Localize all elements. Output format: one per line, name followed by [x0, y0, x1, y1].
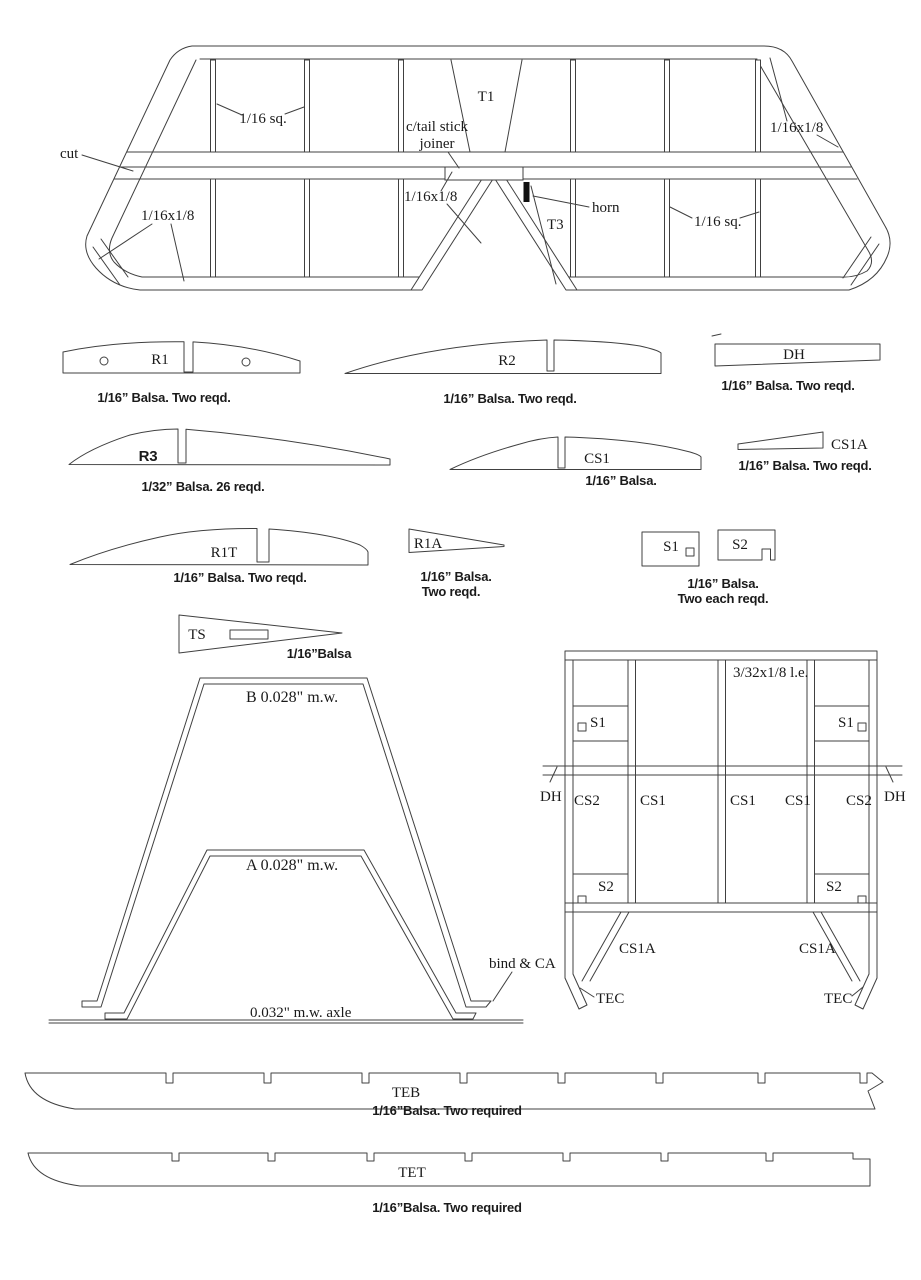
s2-label: S2 — [732, 537, 748, 553]
cs1-label: CS1 — [584, 451, 610, 467]
cut-label: cut — [60, 146, 79, 162]
ts-caption: 1/16”Balsa — [287, 646, 352, 661]
rib — [571, 179, 576, 277]
t3-rib-line — [531, 186, 556, 284]
tet-outline — [28, 1153, 870, 1186]
leader-tec-left — [580, 988, 594, 997]
rib — [211, 179, 216, 277]
cs1a-outline — [738, 432, 823, 450]
dh-label: DH — [783, 347, 805, 363]
cs1-label-c: CS1 — [785, 793, 811, 809]
cs1-outline — [450, 437, 701, 470]
control-horn — [524, 182, 530, 202]
r1-outline — [63, 342, 300, 373]
size-label-bottom-left: 1/16x1/8 — [141, 208, 194, 224]
ts-label: TS — [188, 627, 206, 643]
cs1-caption: 1/16” Balsa. — [585, 473, 656, 488]
cs-s2-right-label: S2 — [826, 879, 842, 895]
cs2-right-label: CS2 — [846, 793, 872, 809]
cs1-label-b: CS1 — [730, 793, 756, 809]
corner-gusset-right — [843, 237, 879, 285]
part-dh: DH 1/16” Balsa. Two reqd. — [712, 334, 880, 393]
part-teb: TEB 1/16”Balsa. Two required — [25, 1073, 883, 1118]
cs-right-tip — [855, 974, 877, 1009]
cs1a-right-label: CS1A — [799, 941, 836, 957]
r3-outline — [69, 429, 390, 465]
part-s1-s2: S1 S2 1/16” Balsa. Two each reqd. — [642, 530, 775, 606]
rib — [665, 60, 670, 152]
cs-column — [628, 660, 636, 903]
gear-a-wire — [105, 850, 476, 1019]
rib — [305, 60, 310, 152]
gear-b-label: B 0.028" m.w. — [246, 689, 338, 706]
dh-tick — [712, 334, 721, 336]
joiner-label-line1: c/tail stick — [406, 119, 469, 135]
tail-stick-joiner — [445, 167, 523, 180]
rib — [399, 60, 404, 152]
cs-s2-left-label: S2 — [598, 879, 614, 895]
cs-right-edge — [869, 660, 877, 978]
part-r1t: R1T 1/16” Balsa. Two reqd. — [70, 528, 368, 585]
axle-label: 0.032" m.w. axle — [250, 1005, 352, 1021]
cs2-left-label: CS2 — [574, 793, 600, 809]
tet-label: TET — [398, 1165, 426, 1181]
cs-dh-left-label: DH — [540, 789, 562, 805]
r1t-label: R1T — [211, 545, 238, 561]
gear-a-label: A 0.028" m.w. — [246, 857, 338, 874]
leader-bind — [493, 972, 512, 1001]
s1-hole — [686, 548, 694, 556]
t1-label: T1 — [478, 89, 495, 105]
s1s2-caption-line2: Two each reqd. — [678, 591, 769, 606]
r3-label: R3 — [139, 448, 158, 465]
s1-square-right — [858, 723, 866, 731]
leader-joiner — [448, 152, 459, 168]
r1a-caption-line1: 1/16” Balsa. — [420, 569, 491, 584]
rib — [305, 179, 310, 277]
horn-label: horn — [592, 200, 620, 216]
le-size-label: 3/32x1/8 l.e. — [733, 665, 808, 681]
s1-square-left — [578, 723, 586, 731]
joiner-label-line2: joiner — [419, 136, 455, 152]
rib — [571, 60, 576, 152]
s1-label: S1 — [663, 539, 679, 555]
size-label-top-left: 1/16 sq. — [239, 111, 287, 127]
size-label-bottom-right: 1/16 sq. — [694, 214, 742, 230]
part-cs1a: CS1A 1/16” Balsa. Two reqd. — [738, 432, 872, 473]
leader-cut — [82, 155, 133, 171]
r1-label: R1 — [151, 352, 169, 368]
left-le-inner — [109, 60, 419, 277]
cs-column — [718, 660, 726, 903]
cs-column — [807, 660, 815, 903]
center-section-diagram: 3/32x1/8 l.e. S1 S1 DH DH CS2 CS1 CS1 CS… — [540, 651, 906, 1009]
right-le-inner — [569, 60, 872, 277]
plan-drawing: cut 1/16 sq. T1 c/tail stick joiner 1/16… — [0, 0, 921, 1280]
cs-left-tip — [565, 974, 587, 1009]
r1-hole — [100, 357, 108, 365]
balsa-plan-sheet: cut 1/16 sq. T1 c/tail stick joiner 1/16… — [0, 0, 921, 1280]
cs-top-spar — [565, 651, 877, 660]
cs-s1-left-label: S1 — [590, 715, 606, 731]
cs1a-left-label: CS1A — [619, 941, 656, 957]
rib — [211, 60, 216, 152]
r1t-caption: 1/16” Balsa. Two reqd. — [173, 570, 306, 585]
elevator-cut-strip-right — [506, 179, 577, 290]
tet-caption: 1/16”Balsa. Two required — [372, 1200, 522, 1215]
leader-size-bottomleft — [99, 224, 184, 281]
t3-label: T3 — [547, 217, 564, 233]
r1a-caption-line2: Two reqd. — [422, 584, 481, 599]
r1-caption: 1/16” Balsa. Two reqd. — [97, 390, 230, 405]
cs1a-caption: 1/16” Balsa. Two reqd. — [738, 458, 871, 473]
teb-label: TEB — [392, 1085, 420, 1101]
size-label-mid: 1/16x1/8 — [404, 189, 457, 205]
r2-label: R2 — [498, 353, 516, 369]
s2-tab-right — [858, 896, 866, 903]
r1-hole — [242, 358, 250, 366]
cs-s1-right-label: S1 — [838, 715, 854, 731]
s1s2-caption-line1: 1/16” Balsa. — [687, 576, 758, 591]
r2-caption: 1/16” Balsa. Two reqd. — [443, 391, 576, 406]
part-r1: R1 1/16” Balsa. Two reqd. — [63, 342, 300, 405]
cs-left-edge — [565, 660, 573, 978]
rib — [399, 179, 404, 277]
part-cs1: CS1 1/16” Balsa. — [450, 437, 701, 488]
rib — [665, 179, 670, 277]
gear-b-wire — [82, 678, 491, 1007]
rib — [756, 60, 761, 152]
part-r3: R3 1/32” Balsa. 26 reqd. — [69, 429, 390, 494]
leader-horn — [533, 196, 589, 207]
cs-bottom-spar — [565, 903, 877, 912]
rib — [756, 179, 761, 277]
tec-left-label: TEC — [596, 991, 624, 1007]
part-tet: TET 1/16”Balsa. Two required — [28, 1153, 870, 1215]
r1a-label: R1A — [414, 536, 443, 552]
dh-caption: 1/16” Balsa. Two reqd. — [721, 378, 854, 393]
landing-gear-diagram: B 0.028" m.w. A 0.028" m.w. bind & CA 0.… — [49, 678, 556, 1023]
t1-rib-right — [505, 60, 522, 152]
teb-caption: 1/16”Balsa. Two required — [372, 1103, 522, 1118]
size-label-top-right: 1/16x1/8 — [770, 120, 823, 136]
r3-caption: 1/32” Balsa. 26 reqd. — [142, 479, 265, 494]
tailplane-diagram: cut 1/16 sq. T1 c/tail stick joiner 1/16… — [60, 46, 890, 290]
cs1a-label: CS1A — [831, 437, 868, 453]
tec-right-label: TEC — [824, 991, 852, 1007]
s2-tab-left — [578, 896, 586, 903]
part-r1a: R1A 1/16” Balsa. Two reqd. — [409, 529, 504, 599]
part-r2: R2 1/16” Balsa. Two reqd. — [345, 340, 661, 406]
corner-gusset-left — [93, 239, 128, 285]
cs-dh-right-label: DH — [884, 789, 906, 805]
bind-ca-label: bind & CA — [489, 956, 556, 972]
ts-slot — [230, 630, 268, 639]
cs1-label-a: CS1 — [640, 793, 666, 809]
part-ts: TS 1/16”Balsa — [179, 615, 352, 661]
